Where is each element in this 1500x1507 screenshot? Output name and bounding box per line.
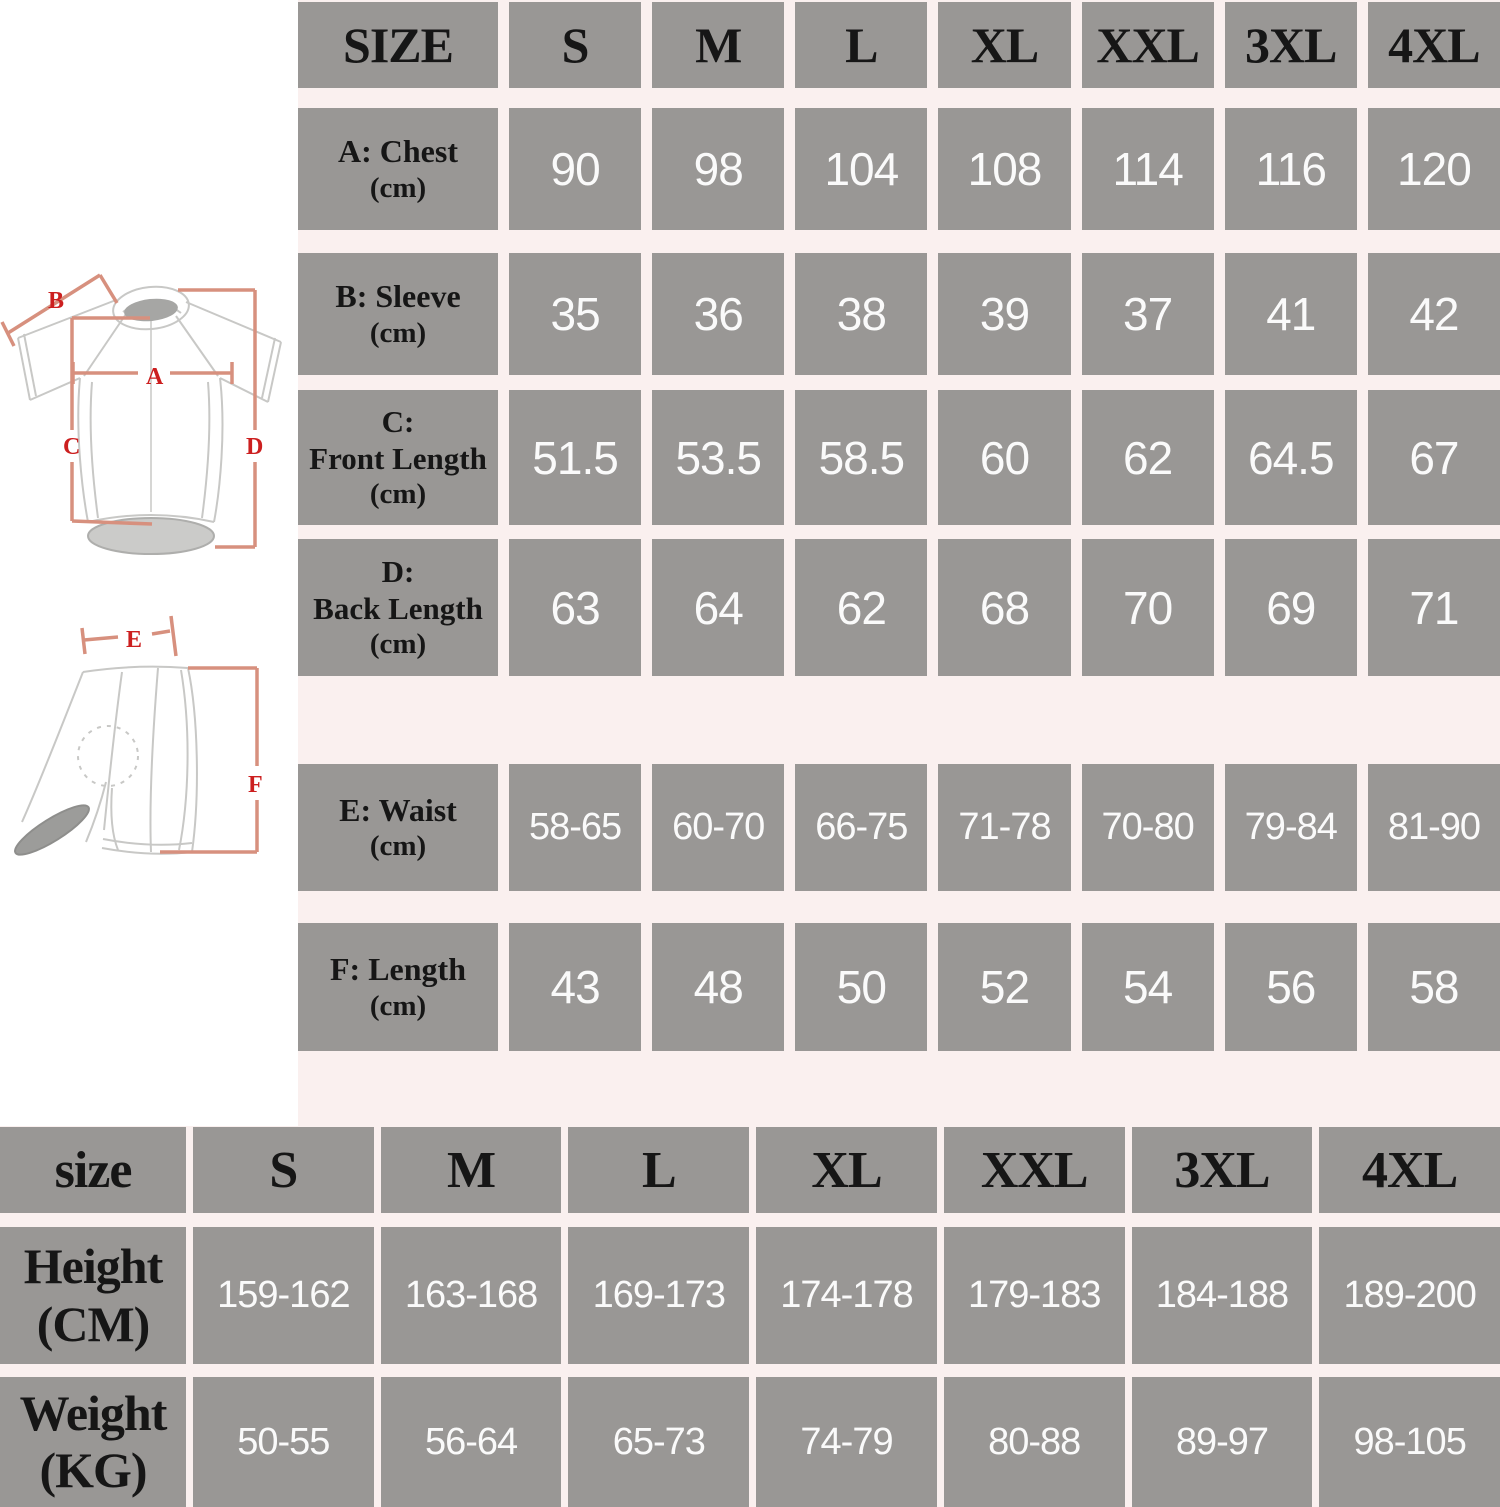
back-length-xxl: 70 <box>1082 539 1214 676</box>
front-length-3xl: 64.5 <box>1225 390 1357 525</box>
col-header-s: S <box>509 2 641 88</box>
body-size-header-cell: size <box>0 1127 186 1213</box>
col-header-l: L <box>795 2 927 88</box>
height-s: 159-162 <box>193 1227 374 1364</box>
sleeve-row: B: Sleeve (cm) 35 36 38 39 37 41 42 <box>298 253 1500 375</box>
weight-xxl: 80-88 <box>944 1377 1125 1507</box>
front-length-s: 51.5 <box>509 390 641 525</box>
back-length-row: D: Back Length (cm) 63 64 62 68 70 69 71 <box>298 539 1500 676</box>
body-col-header-s: S <box>193 1127 374 1213</box>
chest-l: 104 <box>795 108 927 230</box>
col-header-xl: XL <box>938 2 1070 88</box>
sleeve-3xl: 41 <box>1225 253 1357 375</box>
weight-label-cell: Weight (KG) <box>0 1377 186 1507</box>
jersey-measurement-diagram: B A C D <box>0 250 300 560</box>
sleeve-xxl: 37 <box>1082 253 1214 375</box>
body-col-header-m: M <box>381 1127 562 1213</box>
length-unit: (cm) <box>330 989 466 1024</box>
height-label: Height <box>24 1238 162 1296</box>
length-xl: 52 <box>938 923 1070 1051</box>
waist-m: 60-70 <box>652 764 784 891</box>
sleeve-m: 36 <box>652 253 784 375</box>
back-length-xl: 68 <box>938 539 1070 676</box>
waist-row: E: Waist (cm) 58-65 60-70 66-75 71-78 70… <box>298 764 1500 891</box>
length-row: F: Length (cm) 43 48 50 52 54 56 58 <box>298 923 1500 1051</box>
chest-row: A: Chest (cm) 90 98 104 108 114 116 120 <box>298 108 1500 230</box>
height-label-cell: Height (CM) <box>0 1227 186 1364</box>
waist-xl: 71-78 <box>938 764 1070 891</box>
sleeve-xl: 39 <box>938 253 1070 375</box>
body-col-header-xxl: XXL <box>944 1127 1125 1213</box>
body-table-header-row: size S M L XL XXL 3XL 4XL <box>0 1127 1500 1213</box>
length-4xl: 58 <box>1368 923 1500 1051</box>
back-length-label: Back Length <box>313 590 483 627</box>
chest-3xl: 116 <box>1225 108 1357 230</box>
chest-label-cell: A: Chest (cm) <box>298 108 498 230</box>
sleeve-4xl: 42 <box>1368 253 1500 375</box>
chest-m: 98 <box>652 108 784 230</box>
shorts-measurement-diagram: E F <box>0 590 300 900</box>
col-header-xxl: XXL <box>1082 2 1214 88</box>
waist-label-cell: E: Waist (cm) <box>298 764 498 891</box>
front-length-label: Front Length <box>309 440 487 477</box>
measure-label-f: F <box>248 772 263 798</box>
measure-label-d: D <box>246 434 263 460</box>
front-length-xl: 60 <box>938 390 1070 525</box>
body-col-header-l: L <box>568 1127 749 1213</box>
body-col-header-3xl: 3XL <box>1132 1127 1313 1213</box>
weight-m: 56-64 <box>381 1377 562 1507</box>
sleeve-unit: (cm) <box>335 316 460 351</box>
back-length-l: 62 <box>795 539 927 676</box>
waist-unit: (cm) <box>339 829 457 864</box>
waist-4xl: 81-90 <box>1368 764 1500 891</box>
height-xxl: 179-183 <box>944 1227 1125 1364</box>
length-s: 43 <box>509 923 641 1051</box>
front-length-4xl: 67 <box>1368 390 1500 525</box>
length-l: 50 <box>795 923 927 1051</box>
height-3xl: 184-188 <box>1132 1227 1313 1364</box>
weight-unit: (KG) <box>20 1442 167 1500</box>
length-label-cell: F: Length (cm) <box>298 923 498 1051</box>
body-col-header-xl: XL <box>756 1127 937 1213</box>
length-m: 48 <box>652 923 784 1051</box>
back-length-4xl: 71 <box>1368 539 1500 676</box>
sleeve-label-cell: B: Sleeve (cm) <box>298 253 498 375</box>
height-m: 163-168 <box>381 1227 562 1364</box>
length-label: F: Length <box>330 950 466 988</box>
back-length-3xl: 69 <box>1225 539 1357 676</box>
waist-s: 58-65 <box>509 764 641 891</box>
length-xxl: 54 <box>1082 923 1214 1051</box>
front-length-letter: C: <box>309 403 487 440</box>
weight-xl: 74-79 <box>756 1377 937 1507</box>
chest-xl: 108 <box>938 108 1070 230</box>
col-header-4xl: 4XL <box>1368 2 1500 88</box>
left-illustration-panel <box>0 0 298 1126</box>
sleeve-label: B: Sleeve <box>335 277 460 315</box>
chest-label: A: Chest <box>338 132 458 170</box>
body-col-header-4xl: 4XL <box>1319 1127 1500 1213</box>
size-header-cell: SIZE <box>298 2 498 88</box>
weight-s: 50-55 <box>193 1377 374 1507</box>
measure-label-c: C <box>63 434 80 460</box>
sleeve-l: 38 <box>795 253 927 375</box>
chest-4xl: 120 <box>1368 108 1500 230</box>
back-length-label-cell: D: Back Length (cm) <box>298 539 498 676</box>
length-3xl: 56 <box>1225 923 1357 1051</box>
measure-label-a: A <box>146 364 164 390</box>
size-table-header-row: SIZE S M L XL XXL 3XL 4XL <box>298 2 1500 88</box>
back-length-unit: (cm) <box>313 627 483 662</box>
back-length-s: 63 <box>509 539 641 676</box>
waist-3xl: 79-84 <box>1225 764 1357 891</box>
measure-label-e: E <box>126 627 142 653</box>
weight-3xl: 89-97 <box>1132 1377 1313 1507</box>
height-4xl: 189-200 <box>1319 1227 1500 1364</box>
col-header-m: M <box>652 2 784 88</box>
height-row: Height (CM) 159-162 163-168 169-173 174-… <box>0 1227 1500 1364</box>
weight-l: 65-73 <box>568 1377 749 1507</box>
height-l: 169-173 <box>568 1227 749 1364</box>
front-length-xxl: 62 <box>1082 390 1214 525</box>
weight-row: Weight (KG) 50-55 56-64 65-73 74-79 80-8… <box>0 1377 1500 1507</box>
height-xl: 174-178 <box>756 1227 937 1364</box>
height-unit: (CM) <box>24 1296 162 1354</box>
back-length-m: 64 <box>652 539 784 676</box>
waist-xxl: 70-80 <box>1082 764 1214 891</box>
waist-label: E: Waist <box>339 791 457 829</box>
front-length-m: 53.5 <box>652 390 784 525</box>
front-length-row: C: Front Length (cm) 51.5 53.5 58.5 60 6… <box>298 390 1500 525</box>
chest-s: 90 <box>509 108 641 230</box>
shorts-cuff-shading <box>10 798 95 862</box>
weight-4xl: 98-105 <box>1319 1377 1500 1507</box>
chest-xxl: 114 <box>1082 108 1214 230</box>
front-length-l: 58.5 <box>795 390 927 525</box>
back-length-letter: D: <box>313 553 483 590</box>
measure-label-b: B <box>48 288 64 314</box>
weight-label: Weight <box>20 1385 167 1443</box>
front-length-label-cell: C: Front Length (cm) <box>298 390 498 525</box>
front-length-unit: (cm) <box>309 477 487 512</box>
waist-l: 66-75 <box>795 764 927 891</box>
sleeve-s: 35 <box>509 253 641 375</box>
chest-unit: (cm) <box>338 171 458 206</box>
col-header-3xl: 3XL <box>1225 2 1357 88</box>
